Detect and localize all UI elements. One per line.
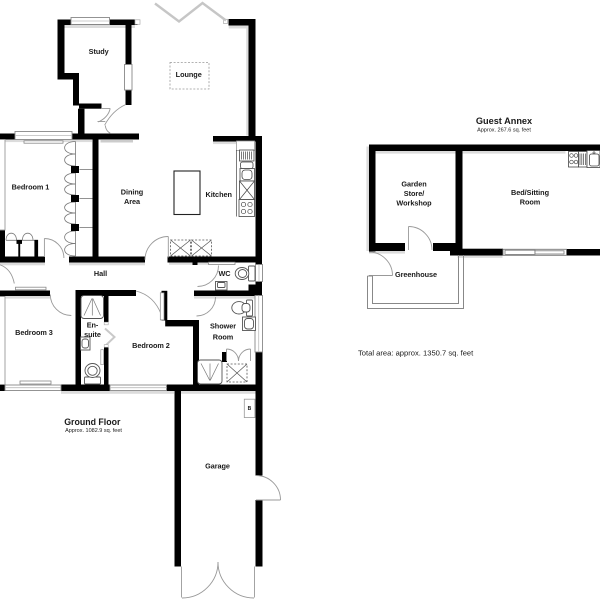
svg-text:Bedroom 3: Bedroom 3 <box>15 328 53 337</box>
svg-text:Hall: Hall <box>94 269 107 278</box>
svg-text:Bedroom 1: Bedroom 1 <box>12 182 50 191</box>
svg-text:Kitchen: Kitchen <box>205 190 231 199</box>
svg-text:B: B <box>248 406 252 412</box>
svg-text:Study: Study <box>89 47 110 56</box>
svg-text:Lounge: Lounge <box>176 70 202 79</box>
svg-text:Workshop: Workshop <box>396 199 432 208</box>
svg-text:Store/: Store/ <box>404 189 424 198</box>
svg-text:Guest Annex: Guest Annex <box>476 116 533 126</box>
svg-text:Approx. 1082.9 sq. feet: Approx. 1082.9 sq. feet <box>65 428 122 434</box>
svg-text:suite: suite <box>84 330 101 339</box>
svg-text:Shower: Shower <box>210 322 236 331</box>
svg-text:Dining: Dining <box>121 188 143 197</box>
svg-text:Garage: Garage <box>205 462 230 471</box>
svg-text:WC: WC <box>218 269 231 278</box>
svg-text:Bed/Sitting: Bed/Sitting <box>511 188 549 197</box>
svg-text:Room: Room <box>213 333 234 342</box>
svg-text:Room: Room <box>520 198 541 207</box>
svg-text:Area: Area <box>124 197 141 206</box>
svg-text:Ground Floor: Ground Floor <box>64 417 121 427</box>
svg-text:En-: En- <box>87 321 99 330</box>
svg-text:Approx. 267.6 sq. feet: Approx. 267.6 sq. feet <box>477 128 531 134</box>
svg-text:Total area: approx. 1350.7 sq.: Total area: approx. 1350.7 sq. feet <box>358 348 474 357</box>
svg-text:Garden: Garden <box>401 180 426 189</box>
svg-text:Greenhouse: Greenhouse <box>395 270 437 279</box>
svg-text:Bedroom 2: Bedroom 2 <box>132 341 170 350</box>
